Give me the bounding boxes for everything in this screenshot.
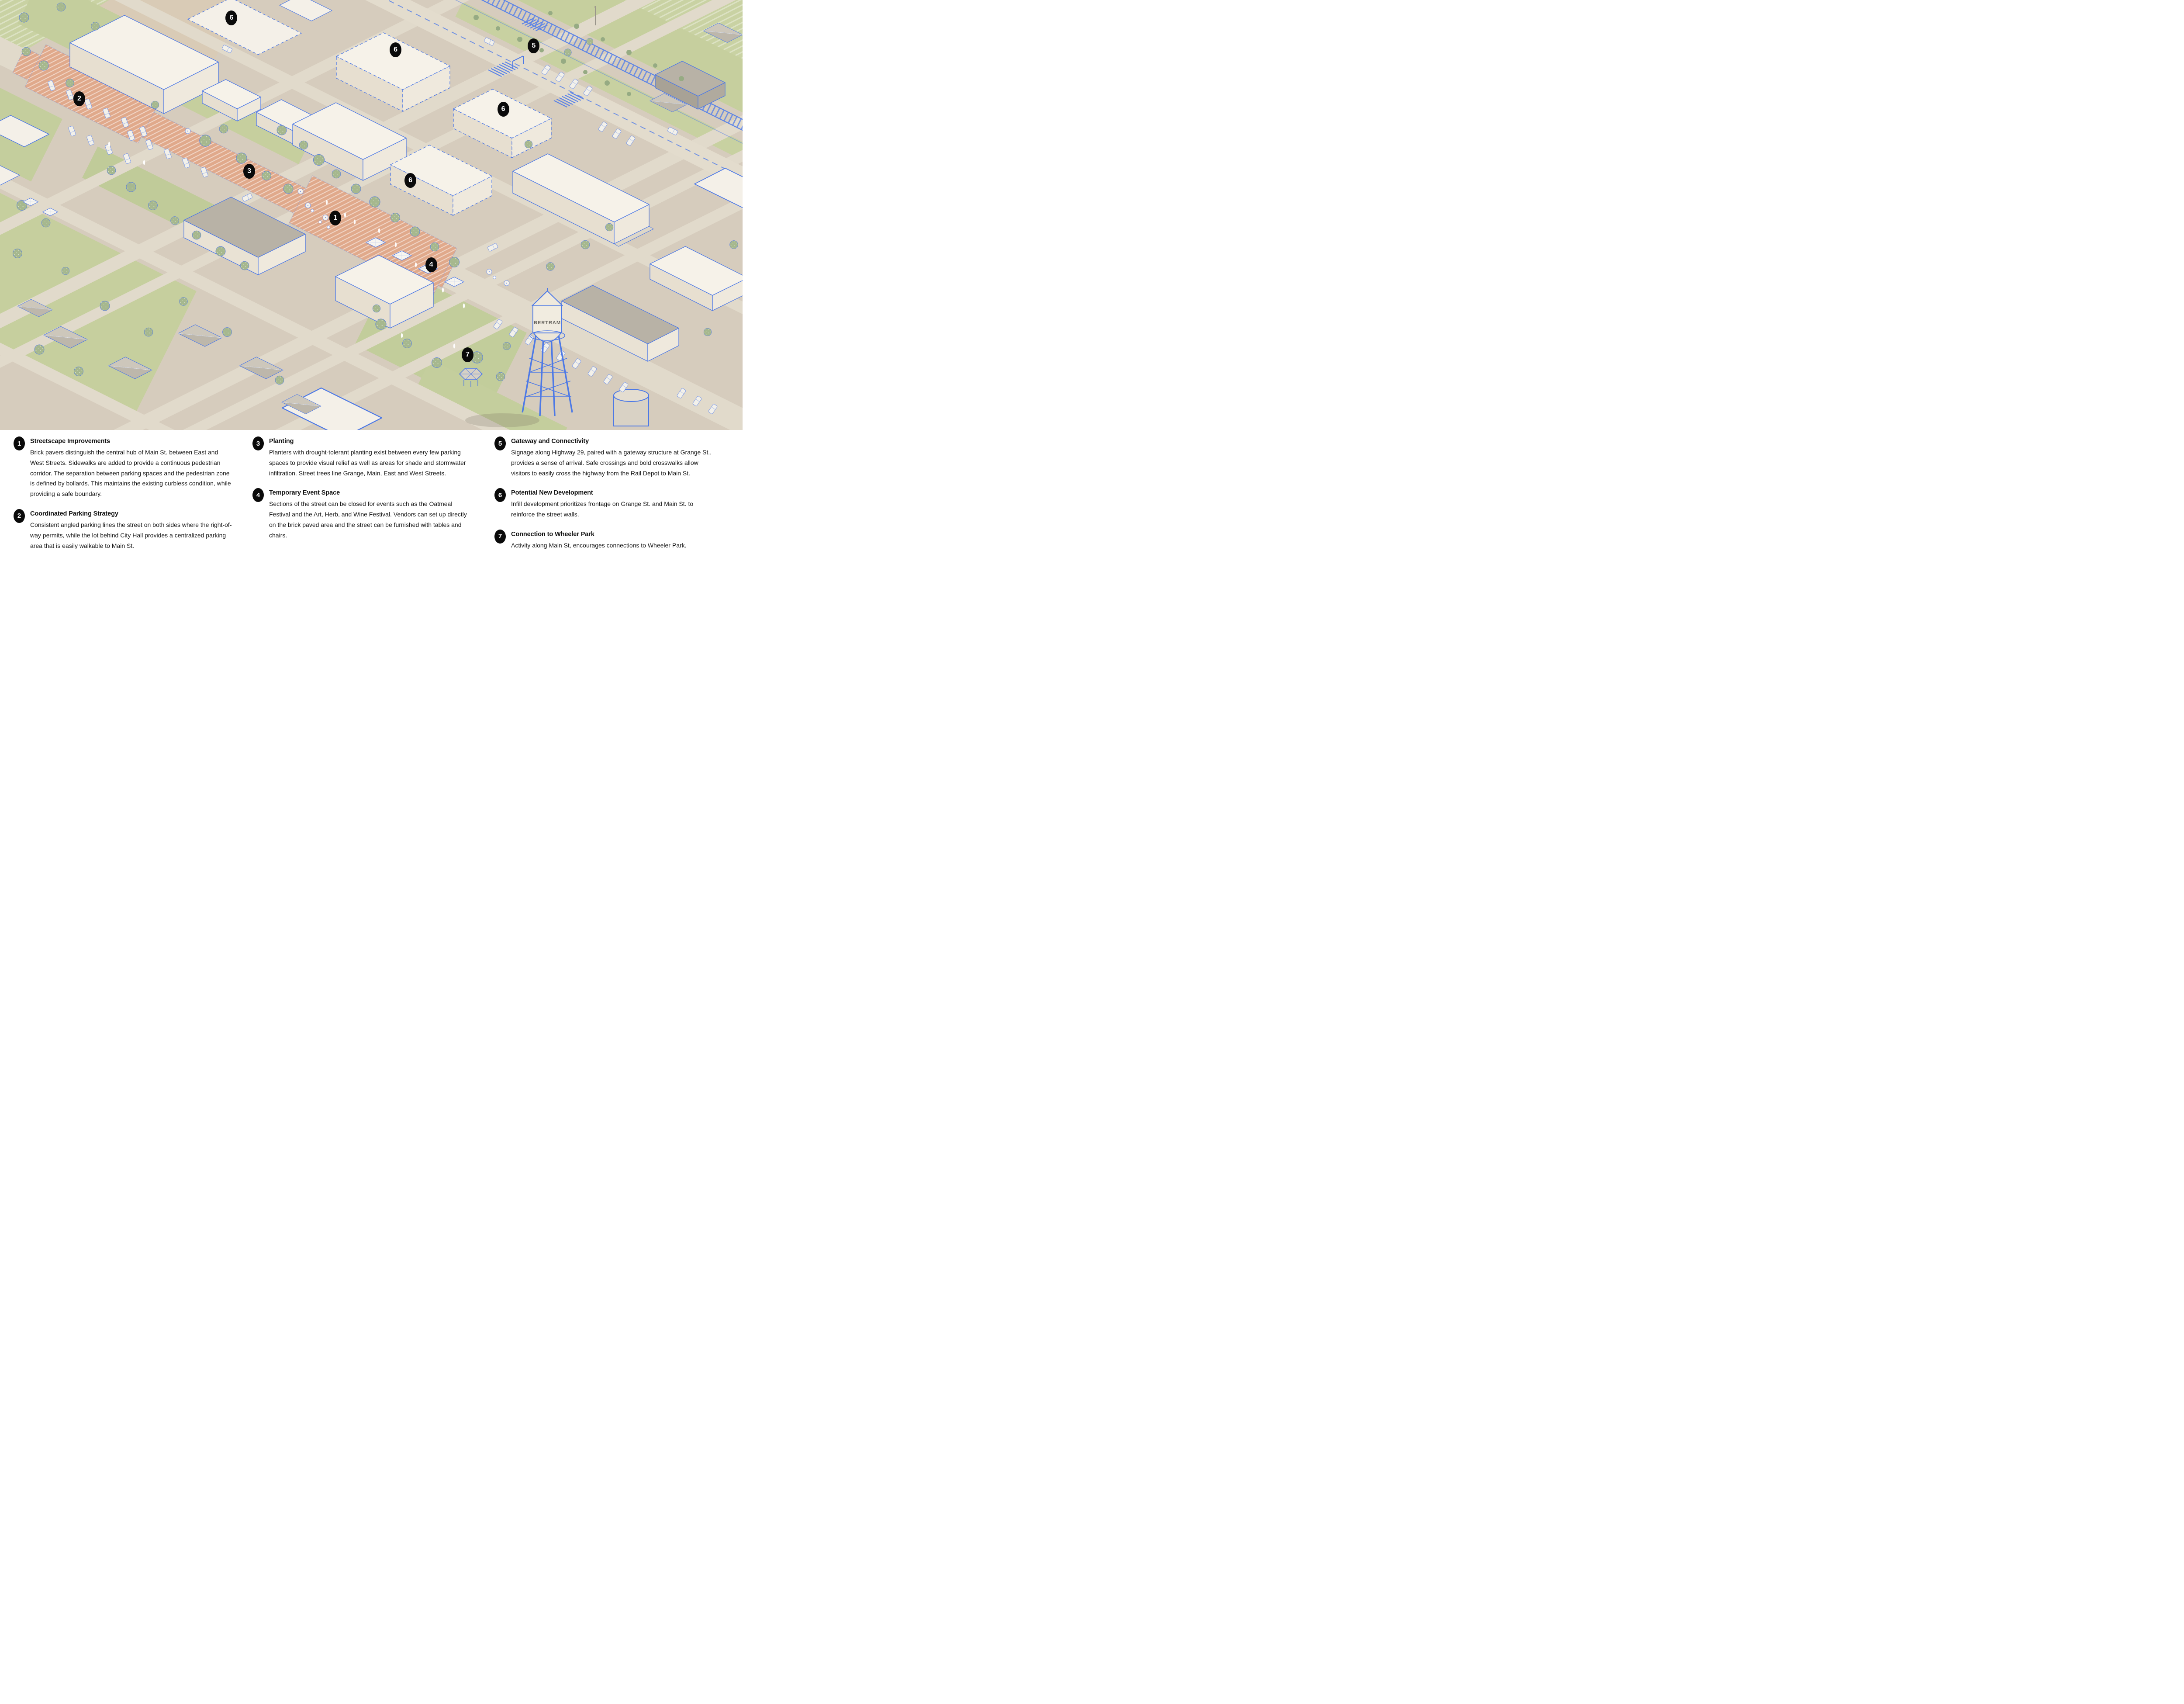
map-marker-number: 7 bbox=[466, 351, 470, 358]
legend-item-number: 6 bbox=[494, 488, 506, 502]
map-marker-number: 6 bbox=[501, 106, 505, 113]
legend-item: 1 Streetscape Improvements Brick pavers … bbox=[14, 438, 234, 499]
map-marker-number: 1 bbox=[333, 215, 337, 222]
map-marker-number: 3 bbox=[247, 168, 251, 175]
legend-item-title: Potential New Development bbox=[511, 489, 713, 496]
legend-item: 6 Potential New Development Infill devel… bbox=[494, 489, 730, 520]
legend: 1 Streetscape Improvements Brick pavers … bbox=[0, 430, 743, 568]
site-plan-illustration: BERTRAM 1 2 3 4 5 6 6 6 6 7 bbox=[0, 0, 743, 430]
legend-column-3: 5 Gateway and Connectivity Signage along… bbox=[494, 438, 730, 562]
legend-item-title: Temporary Event Space bbox=[269, 489, 471, 496]
legend-item-number: 7 bbox=[494, 530, 506, 544]
legend-item-body: Planters with drought-tolerant planting … bbox=[269, 447, 471, 478]
map-marker: 6 bbox=[390, 42, 401, 57]
legend-item-title: Coordinated Parking Strategy bbox=[30, 510, 232, 517]
legend-item-title: Planting bbox=[269, 438, 471, 445]
map-marker: 2 bbox=[73, 91, 85, 106]
legend-item-body: Sections of the street can be closed for… bbox=[269, 499, 471, 540]
map-marker-number: 2 bbox=[77, 95, 81, 102]
legend-item: 4 Temporary Event Space Sections of the … bbox=[252, 489, 473, 540]
legend-item-title: Streetscape Improvements bbox=[30, 438, 232, 445]
legend-item: 5 Gateway and Connectivity Signage along… bbox=[494, 438, 730, 478]
map-marker-number: 5 bbox=[532, 42, 536, 49]
water-tower-town-name: BERTRAM bbox=[534, 320, 561, 326]
map-marker: 4 bbox=[425, 257, 437, 272]
legend-item-number: 3 bbox=[252, 436, 264, 450]
legend-item-title: Gateway and Connectivity bbox=[511, 438, 713, 445]
legend-column-1: 1 Streetscape Improvements Brick pavers … bbox=[14, 438, 234, 562]
legend-item-number: 1 bbox=[14, 436, 25, 450]
map-marker: 7 bbox=[462, 347, 473, 362]
map-marker: 6 bbox=[498, 102, 509, 117]
map-marker-number: 6 bbox=[408, 177, 412, 184]
legend-item: 3 Planting Planters with drought-toleran… bbox=[252, 438, 473, 478]
legend-item-text: Gateway and Connectivity Signage along H… bbox=[511, 438, 713, 478]
map-marker-number: 4 bbox=[429, 261, 433, 268]
legend-item-body: Activity along Main St, encourages conne… bbox=[511, 540, 687, 551]
page: BERTRAM 1 2 3 4 5 6 6 6 6 7 1 Streetscap… bbox=[0, 0, 743, 568]
legend-item-number: 4 bbox=[252, 488, 264, 502]
legend-item-body: Signage along Highway 29, paired with a … bbox=[511, 447, 713, 478]
legend-item-text: Connection to Wheeler Park Activity alon… bbox=[511, 531, 687, 551]
legend-item-text: Planting Planters with drought-tolerant … bbox=[269, 438, 471, 478]
legend-item-title: Connection to Wheeler Park bbox=[511, 531, 687, 538]
map-marker: 3 bbox=[243, 164, 255, 179]
site-plan-svg: BERTRAM bbox=[0, 0, 743, 430]
legend-item-body: Infill development prioritizes frontage … bbox=[511, 499, 713, 520]
legend-item-text: Temporary Event Space Sections of the st… bbox=[269, 489, 471, 540]
legend-column-2: 3 Planting Planters with drought-toleran… bbox=[252, 438, 473, 552]
map-marker-number: 6 bbox=[229, 14, 233, 21]
legend-item-text: Potential New Development Infill develop… bbox=[511, 489, 713, 520]
legend-item-body: Brick pavers distinguish the central hub… bbox=[30, 447, 232, 499]
legend-item-number: 5 bbox=[494, 436, 506, 450]
legend-item: 2 Coordinated Parking Strategy Consisten… bbox=[14, 510, 234, 551]
legend-item-text: Coordinated Parking Strategy Consistent … bbox=[30, 510, 232, 551]
legend-item-body: Consistent angled parking lines the stre… bbox=[30, 520, 232, 551]
legend-item-number: 2 bbox=[14, 509, 25, 523]
storage-tank bbox=[614, 389, 649, 426]
map-marker-number: 6 bbox=[394, 46, 397, 53]
legend-item: 7 Connection to Wheeler Park Activity al… bbox=[494, 531, 730, 551]
legend-item-text: Streetscape Improvements Brick pavers di… bbox=[30, 438, 232, 499]
